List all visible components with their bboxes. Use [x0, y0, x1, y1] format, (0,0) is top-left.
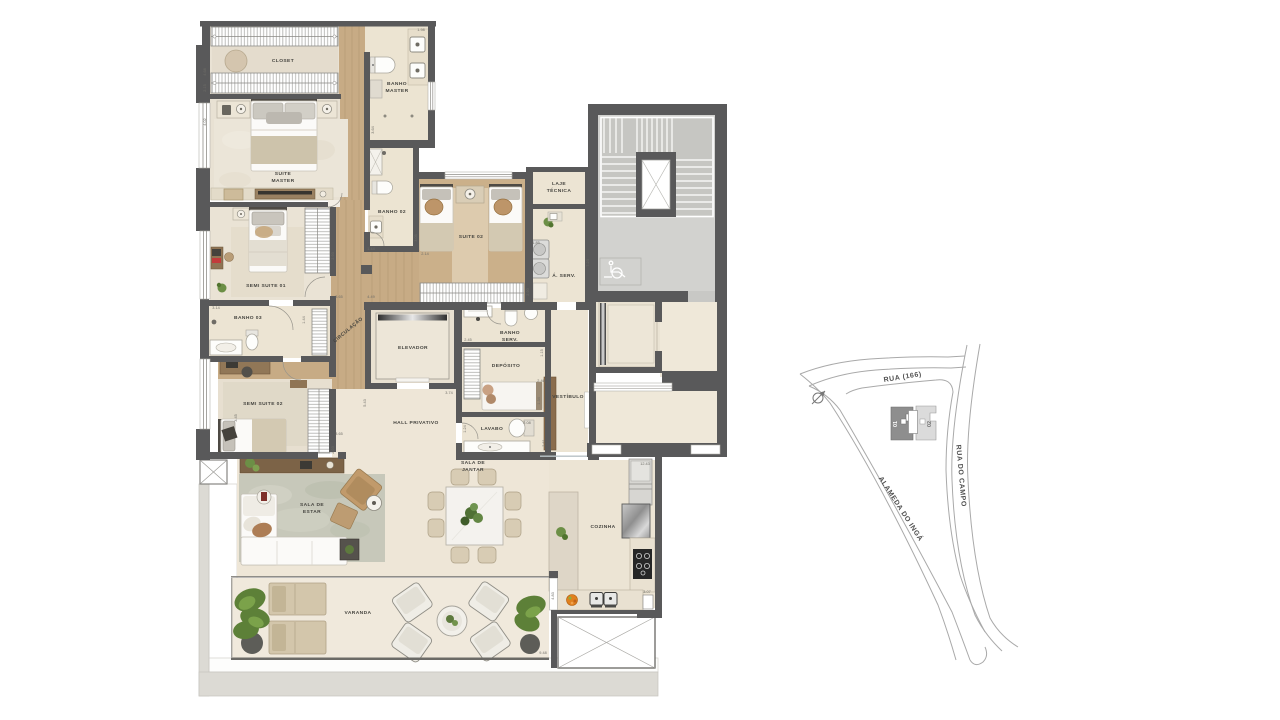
svg-text:1.85: 1.85 — [532, 241, 539, 245]
svg-text:2.08: 2.08 — [523, 421, 530, 425]
svg-text:3.14: 3.14 — [212, 306, 219, 310]
svg-text:2.14: 2.14 — [421, 252, 428, 256]
svg-text:4.83: 4.83 — [551, 592, 555, 599]
svg-text:3.64: 3.64 — [371, 126, 375, 133]
svg-text:SERV.: SERV. — [502, 337, 518, 343]
svg-text:CLOSET: CLOSET — [272, 58, 294, 64]
svg-text:3.07: 3.07 — [643, 590, 650, 594]
svg-text:JANTAR: JANTAR — [462, 467, 484, 473]
svg-text:1.24: 1.24 — [463, 425, 467, 432]
svg-text:2.93: 2.93 — [331, 252, 335, 259]
svg-text:1.15: 1.15 — [540, 349, 544, 356]
svg-text:2.90: 2.90 — [526, 288, 530, 295]
svg-text:4.02: 4.02 — [203, 118, 207, 125]
svg-text:5.43: 5.43 — [363, 399, 367, 406]
svg-text:2.15: 2.15 — [203, 84, 207, 91]
svg-text:12.43: 12.43 — [640, 462, 650, 466]
svg-text:MASTER: MASTER — [271, 178, 294, 184]
svg-text:VARANDA: VARANDA — [345, 610, 372, 616]
svg-text:3.74: 3.74 — [445, 391, 452, 395]
svg-text:BANHO 03: BANHO 03 — [234, 315, 262, 321]
svg-text:4.49: 4.49 — [367, 295, 374, 299]
svg-text:LAJE: LAJE — [552, 181, 566, 187]
svg-text:9.48: 9.48 — [539, 651, 546, 655]
svg-text:4.68: 4.68 — [203, 68, 207, 75]
svg-text:MASTER: MASTER — [385, 88, 408, 94]
svg-text:SUITE 02: SUITE 02 — [459, 234, 483, 240]
svg-text:1.44: 1.44 — [302, 316, 306, 323]
svg-text:HALL PRIVATIVO: HALL PRIVATIVO — [393, 420, 439, 426]
svg-text:3.65: 3.65 — [335, 295, 342, 299]
svg-text:Á. SERV.: Á. SERV. — [552, 272, 576, 279]
svg-text:7.23: 7.23 — [586, 259, 590, 266]
svg-text:3.45: 3.45 — [234, 414, 238, 421]
svg-text:SUITE: SUITE — [275, 171, 292, 177]
svg-text:BANHO: BANHO — [500, 330, 520, 336]
svg-text:1.34: 1.34 — [537, 397, 541, 404]
svg-text:SEMI SUITE 01: SEMI SUITE 01 — [246, 283, 286, 289]
svg-text:LAVABO: LAVABO — [481, 426, 503, 432]
svg-text:BANHO 02: BANHO 02 — [378, 209, 406, 215]
svg-text:1.44: 1.44 — [367, 247, 374, 251]
svg-text:3.65: 3.65 — [335, 432, 342, 436]
svg-text:SEMI SUITE 02: SEMI SUITE 02 — [243, 401, 283, 407]
svg-text:01: 01 — [893, 421, 899, 427]
svg-text:ESTAR: ESTAR — [303, 509, 321, 515]
svg-text:BANHO: BANHO — [387, 81, 407, 87]
svg-text:2.93: 2.93 — [331, 446, 335, 453]
svg-text:1.98: 1.98 — [417, 28, 424, 32]
svg-text:2.46: 2.46 — [537, 379, 544, 383]
svg-text:02: 02 — [927, 421, 933, 427]
svg-text:SALA DE: SALA DE — [300, 502, 324, 508]
svg-text:COZINHA: COZINHA — [590, 524, 615, 530]
svg-text:ELEVADOR: ELEVADOR — [398, 345, 428, 351]
svg-text:2.61: 2.61 — [542, 439, 546, 446]
svg-text:2.45: 2.45 — [464, 338, 471, 342]
svg-text:3.05: 3.05 — [414, 234, 418, 241]
svg-text:SALA DE: SALA DE — [461, 460, 485, 466]
